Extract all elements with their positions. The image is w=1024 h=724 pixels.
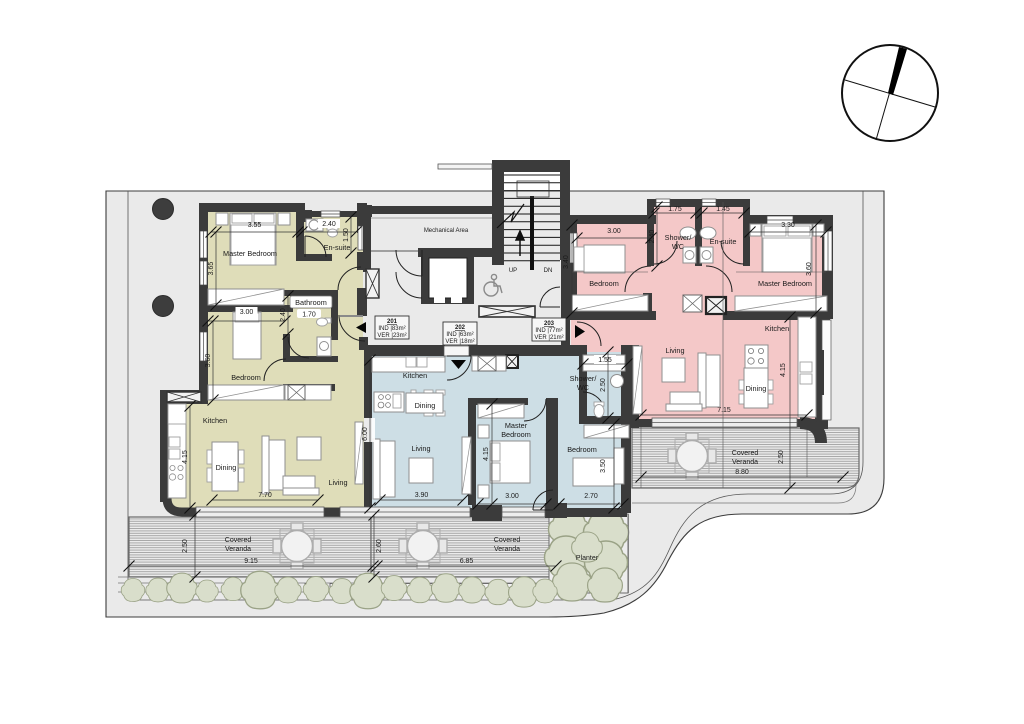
svg-text:IND |83m²: IND |83m² <box>378 326 405 332</box>
svg-text:202: 202 <box>455 325 466 331</box>
svg-text:Bedroom: Bedroom <box>231 373 261 382</box>
svg-text:VER |21m²: VER |21m² <box>534 335 563 341</box>
svg-text:3.90: 3.90 <box>415 492 429 499</box>
svg-text:6.85: 6.85 <box>460 558 474 565</box>
svg-text:UP: UP <box>509 268 517 274</box>
svg-text:3.60: 3.60 <box>205 354 212 368</box>
svg-text:Shower/: Shower/ <box>665 233 693 242</box>
svg-text:Bedroom: Bedroom <box>501 430 531 439</box>
svg-text:Bedroom: Bedroom <box>589 279 619 288</box>
svg-text:Mechanical Area: Mechanical Area <box>424 228 469 234</box>
svg-text:Master Bedroom: Master Bedroom <box>223 249 277 258</box>
svg-text:En-suite: En-suite <box>324 243 351 252</box>
svg-text:Kitchen: Kitchen <box>203 416 227 425</box>
svg-text:Master Bedroom: Master Bedroom <box>758 279 812 288</box>
svg-text:Veranda: Veranda <box>732 459 758 466</box>
svg-text:3.60: 3.60 <box>806 262 813 276</box>
svg-text:Kitchen: Kitchen <box>403 371 427 380</box>
svg-text:WC: WC <box>577 383 589 392</box>
svg-text:9.15: 9.15 <box>244 558 258 565</box>
svg-text:Master: Master <box>505 421 528 430</box>
svg-text:3.00: 3.00 <box>505 493 519 500</box>
svg-text:Dining: Dining <box>746 384 767 393</box>
svg-text:Covered: Covered <box>225 537 252 544</box>
svg-text:2.40: 2.40 <box>280 308 287 322</box>
svg-text:4.15: 4.15 <box>483 447 490 461</box>
svg-text:4.15: 4.15 <box>182 450 189 464</box>
svg-text:2.40: 2.40 <box>322 221 336 228</box>
svg-text:2.60: 2.60 <box>376 539 383 553</box>
svg-text:Kitchen: Kitchen <box>765 324 789 333</box>
svg-text:Planter: Planter <box>576 555 599 562</box>
svg-text:7.15: 7.15 <box>717 407 731 414</box>
svg-text:Veranda: Veranda <box>494 546 520 553</box>
svg-text:1.70: 1.70 <box>302 312 316 319</box>
svg-text:1.75: 1.75 <box>668 206 682 213</box>
svg-text:3.40: 3.40 <box>563 255 570 269</box>
svg-text:Covered: Covered <box>732 450 759 457</box>
svg-text:3.65: 3.65 <box>208 262 215 276</box>
svg-text:8.80: 8.80 <box>735 469 749 476</box>
svg-text:Living: Living <box>411 444 430 453</box>
svg-text:Living: Living <box>665 346 684 355</box>
svg-text:4.15: 4.15 <box>780 363 787 377</box>
svg-text:3.00: 3.00 <box>240 309 254 316</box>
svg-text:DN: DN <box>544 268 553 274</box>
svg-text:2.50: 2.50 <box>182 539 189 553</box>
svg-text:3.55: 3.55 <box>248 222 262 229</box>
svg-text:1.50: 1.50 <box>343 228 350 242</box>
svg-text:6.00: 6.00 <box>362 427 369 441</box>
svg-text:203: 203 <box>544 321 555 327</box>
svg-text:2.50: 2.50 <box>600 378 607 392</box>
svg-text:Shower/: Shower/ <box>570 374 598 383</box>
svg-text:Dining: Dining <box>216 463 237 472</box>
svg-text:7.70: 7.70 <box>258 492 272 499</box>
svg-text:Covered: Covered <box>494 537 521 544</box>
svg-text:Dining: Dining <box>415 401 436 410</box>
svg-text:1.55: 1.55 <box>598 357 612 364</box>
svg-text:WC: WC <box>672 242 684 251</box>
svg-text:Bathroom: Bathroom <box>295 298 327 307</box>
svg-text:VER |18m²: VER |18m² <box>445 339 474 345</box>
svg-text:3.50: 3.50 <box>600 459 607 473</box>
svg-text:201: 201 <box>387 319 398 325</box>
svg-text:3.00: 3.00 <box>607 228 621 235</box>
svg-text:2.40: 2.40 <box>649 230 656 244</box>
svg-text:Living: Living <box>328 478 347 487</box>
svg-text:2.50: 2.50 <box>778 450 785 464</box>
svg-text:Bedroom: Bedroom <box>567 445 597 454</box>
svg-text:IND |63m²: IND |63m² <box>446 332 473 338</box>
svg-text:Veranda: Veranda <box>225 546 251 553</box>
svg-text:VER |23m²: VER |23m² <box>377 333 406 339</box>
svg-text:2.70: 2.70 <box>584 493 598 500</box>
svg-text:3.30: 3.30 <box>781 222 795 229</box>
svg-text:IND |77m²: IND |77m² <box>535 328 562 334</box>
